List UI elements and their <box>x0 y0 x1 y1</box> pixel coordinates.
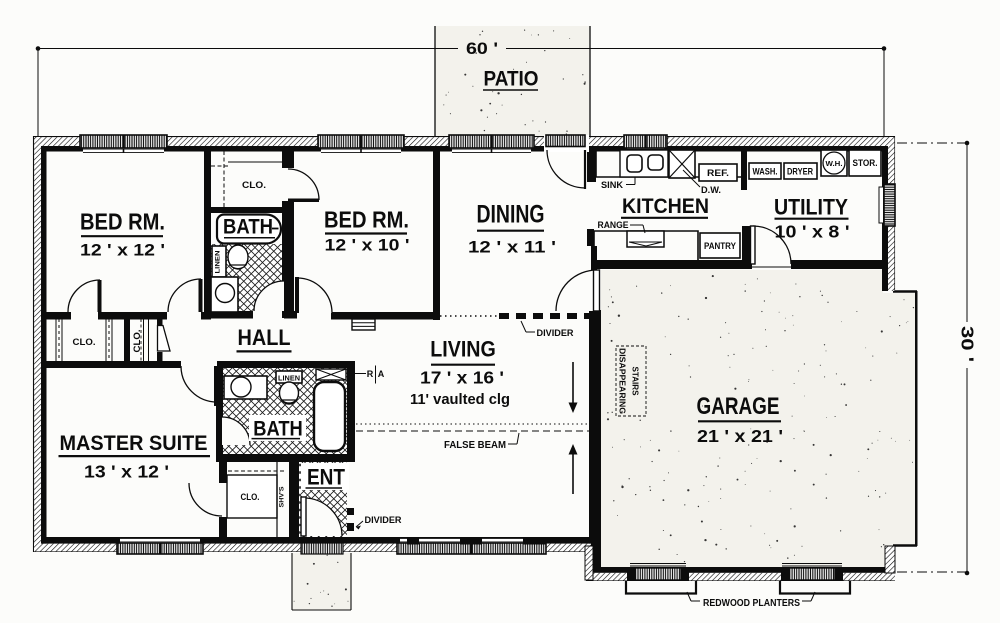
svg-text:60 ': 60 ' <box>466 39 498 58</box>
svg-text:DISAPPEARING: DISAPPEARING <box>618 348 628 414</box>
svg-text:LINEN: LINEN <box>215 250 222 274</box>
svg-text:STOR.: STOR. <box>853 158 878 168</box>
svg-text:KITCHEN: KITCHEN <box>622 195 709 218</box>
svg-text:12 ' x 10 ': 12 ' x 10 ' <box>325 237 410 255</box>
svg-text:12 ' x 12 ': 12 ' x 12 ' <box>80 242 165 260</box>
svg-text:DIVIDER: DIVIDER <box>365 515 402 526</box>
svg-text:CLO.: CLO. <box>242 180 266 191</box>
svg-text:LIVING: LIVING <box>430 337 496 362</box>
svg-text:RANGE: RANGE <box>598 220 629 231</box>
svg-text:PATIO: PATIO <box>484 68 539 91</box>
svg-text:REF.: REF. <box>707 168 729 178</box>
svg-text:11' vaulted clg: 11' vaulted clg <box>410 392 510 408</box>
svg-text:21 ' x 21 ': 21 ' x 21 ' <box>697 426 783 446</box>
svg-text:BED RM.: BED RM. <box>80 209 165 235</box>
svg-text:PANTRY: PANTRY <box>704 241 736 251</box>
svg-text:STAIRS: STAIRS <box>631 367 641 396</box>
svg-text:CLO.: CLO. <box>132 330 143 353</box>
svg-text:CLO.: CLO. <box>241 492 260 502</box>
svg-text:SHV'S: SHV'S <box>279 486 286 508</box>
svg-text:GARAGE: GARAGE <box>697 393 780 420</box>
svg-text:17 ' x 16 ': 17 ' x 16 ' <box>420 368 504 388</box>
svg-text:ENT: ENT <box>307 465 345 490</box>
svg-text:DRYER: DRYER <box>787 167 813 177</box>
svg-text:D.W.: D.W. <box>701 185 721 196</box>
svg-text:WASH.: WASH. <box>753 167 778 177</box>
svg-text:SINK: SINK <box>601 180 623 191</box>
svg-text:R: R <box>367 369 374 379</box>
svg-text:UTILITY: UTILITY <box>774 195 848 220</box>
svg-text:HALL: HALL <box>238 325 291 350</box>
svg-text:DINING: DINING <box>477 201 545 229</box>
svg-text:DIVIDER: DIVIDER <box>537 328 574 339</box>
svg-text:12 ' x 11 ': 12 ' x 11 ' <box>468 238 556 257</box>
svg-text:BATH: BATH <box>223 216 273 239</box>
svg-text:BED RM.: BED RM. <box>324 207 409 233</box>
svg-text:BATH: BATH <box>253 418 303 441</box>
svg-text:REDWOOD PLANTERS: REDWOOD PLANTERS <box>703 597 800 609</box>
svg-text:10 ' x 8 ': 10 ' x 8 ' <box>775 222 850 242</box>
svg-text:W.H.: W.H. <box>826 161 843 168</box>
svg-text:13 ' x 12 ': 13 ' x 12 ' <box>84 462 169 482</box>
svg-text:CLO.: CLO. <box>73 337 96 348</box>
svg-text:FALSE BEAM: FALSE BEAM <box>444 440 506 451</box>
svg-text:MASTER SUITE: MASTER SUITE <box>60 431 208 455</box>
svg-text:A: A <box>378 369 385 379</box>
svg-text:30 ': 30 ' <box>958 326 978 362</box>
